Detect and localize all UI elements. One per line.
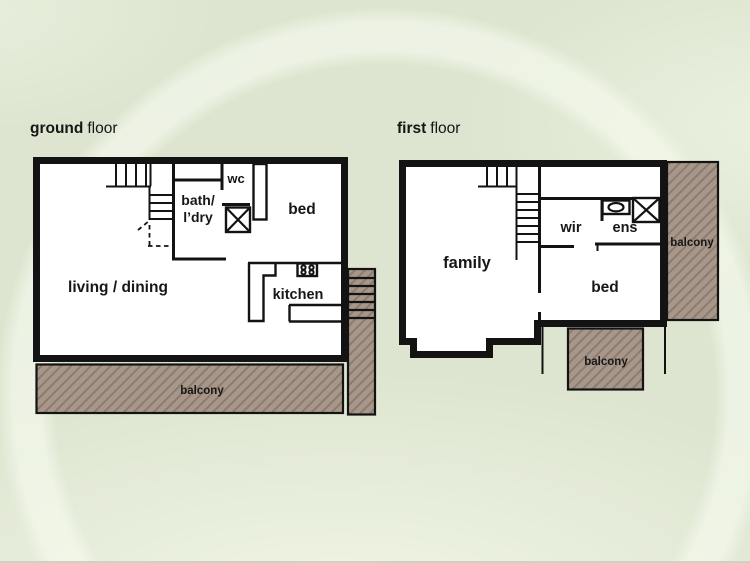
wall-segment (33, 157, 40, 362)
ground-floor-title: groundfloor (30, 120, 118, 137)
room-label-bed-first: bed (591, 279, 619, 296)
wall-segment (410, 351, 493, 358)
room-label-kitchen: kitchen (273, 287, 324, 303)
wall-segment (399, 160, 667, 167)
wall-segment (486, 338, 541, 345)
ground-floor-plan: groundfloor (30, 120, 375, 415)
room-label-wc: wc (226, 171, 244, 186)
room-label-bed-ground: bed (288, 201, 316, 218)
first-floor-plan: firstfloor (397, 120, 718, 390)
wall-segment (33, 157, 348, 164)
wardrobe-icon (254, 164, 267, 220)
ground-external-stair-area (348, 269, 375, 415)
room-label-bath-line1: bath/ (181, 192, 215, 208)
room-label-balcony-ground: balcony (180, 385, 224, 397)
floorplan-page: { "titles": { "ground_bold": "ground", "… (0, 0, 750, 563)
wall-segment (538, 320, 667, 327)
room-label-balcony-right: balcony (670, 237, 714, 249)
wall-segment (33, 355, 348, 362)
room-label-balcony-bottom: balcony (584, 356, 628, 368)
room-label-wir: wir (560, 220, 582, 236)
wall-segment (341, 157, 348, 362)
room-label-living-dining: living / dining (68, 279, 168, 296)
room-label-bath-line2: l’dry (183, 209, 213, 225)
floor-plans-graphic: groundfloor (0, 0, 750, 563)
wall-segment (660, 160, 667, 327)
first-floor-title: firstfloor (397, 120, 460, 137)
first-floor-title-rest: floor (430, 120, 460, 137)
ground-floor-title-rest: floor (87, 120, 117, 137)
wall-segment (399, 160, 406, 345)
first-floor-title-bold: first (397, 120, 426, 137)
room-label-family: family (443, 254, 492, 272)
stove-icon (298, 264, 318, 277)
room-label-ens: ens (613, 220, 638, 236)
ground-floor-title-bold: ground (30, 120, 83, 137)
